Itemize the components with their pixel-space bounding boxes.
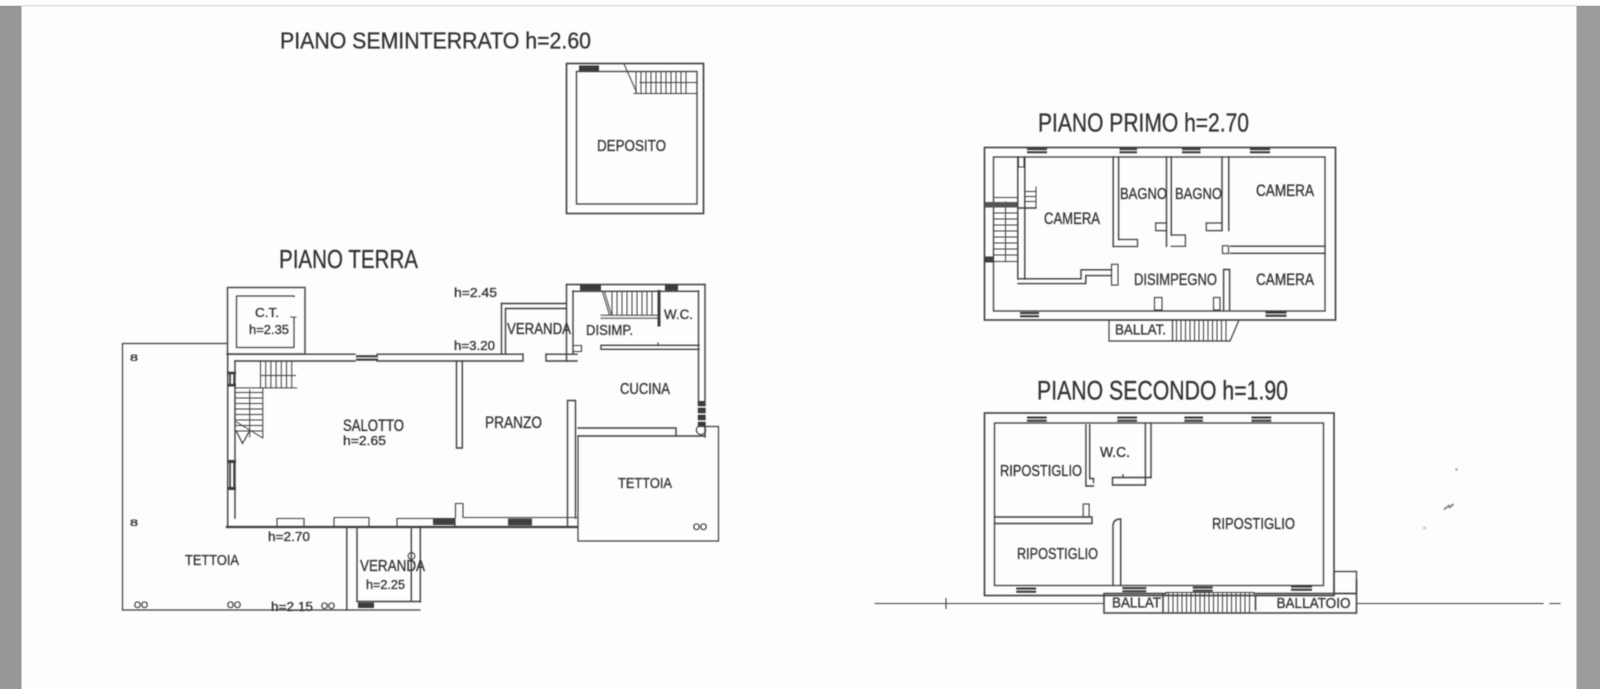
svg-text:CAMERA: CAMERA xyxy=(1256,182,1314,200)
svg-text:BALLAT: BALLAT xyxy=(1112,596,1161,612)
svg-text:CUCINA: CUCINA xyxy=(620,381,670,398)
svg-text:h=2.15: h=2.15 xyxy=(271,600,313,614)
svg-text:BAGNO: BAGNO xyxy=(1175,186,1222,203)
svg-text:BAGNO: BAGNO xyxy=(1120,186,1167,203)
svg-text:DISIMPEGNO: DISIMPEGNO xyxy=(1134,271,1217,289)
svg-text:VERANDA: VERANDA xyxy=(360,558,426,575)
svg-text:RIPOSTIGLIO: RIPOSTIGLIO xyxy=(1212,516,1295,533)
svg-text:h=2.45: h=2.45 xyxy=(454,286,497,300)
svg-text:h=2.35: h=2.35 xyxy=(249,323,289,337)
svg-text:CAMERA: CAMERA xyxy=(1256,271,1314,289)
svg-text:PIANO SEMINTERRATO h=2.60: PIANO SEMINTERRATO h=2.60 xyxy=(280,28,591,54)
svg-text:8: 8 xyxy=(130,353,138,363)
svg-text:PIANO PRIMO h=2.70: PIANO PRIMO h=2.70 xyxy=(1038,108,1249,138)
svg-text:OO: OO xyxy=(693,522,707,532)
svg-text:RIPOSTIGLIO: RIPOSTIGLIO xyxy=(1017,546,1098,563)
svg-text:PIANO SECONDO h=1.90: PIANO SECONDO h=1.90 xyxy=(1037,376,1288,406)
svg-text:h=2.65: h=2.65 xyxy=(343,433,386,448)
svg-text:PRANZO: PRANZO xyxy=(485,414,542,432)
svg-text:h=2.25: h=2.25 xyxy=(366,578,405,592)
svg-text:TETTOIA: TETTOIA xyxy=(185,552,239,569)
svg-text:W.C.: W.C. xyxy=(1100,445,1130,461)
svg-text:h=3.20: h=3.20 xyxy=(454,339,495,353)
svg-text:VERANDA: VERANDA xyxy=(507,321,572,338)
svg-text:TETTOIA: TETTOIA xyxy=(618,475,672,492)
svg-text:BALLATOIO: BALLATOIO xyxy=(1277,596,1351,612)
svg-text:OO: OO xyxy=(134,600,148,610)
svg-text:DISIMP.: DISIMP. xyxy=(586,323,633,339)
svg-text:8: 8 xyxy=(130,518,138,528)
svg-text:PIANO TERRA: PIANO TERRA xyxy=(279,244,419,274)
svg-text:OO: OO xyxy=(321,601,335,611)
svg-text:RIPOSTIGLIO: RIPOSTIGLIO xyxy=(1000,463,1082,480)
svg-text:h=2.70: h=2.70 xyxy=(268,530,310,544)
svg-text:W.C.: W.C. xyxy=(664,306,693,322)
svg-text:BALLAT.: BALLAT. xyxy=(1115,323,1166,339)
svg-text:CAMERA: CAMERA xyxy=(1044,210,1100,228)
svg-text:C.T.: C.T. xyxy=(255,305,279,320)
svg-text:DEPOSITO: DEPOSITO xyxy=(597,138,666,155)
svg-text:OO: OO xyxy=(227,600,241,610)
